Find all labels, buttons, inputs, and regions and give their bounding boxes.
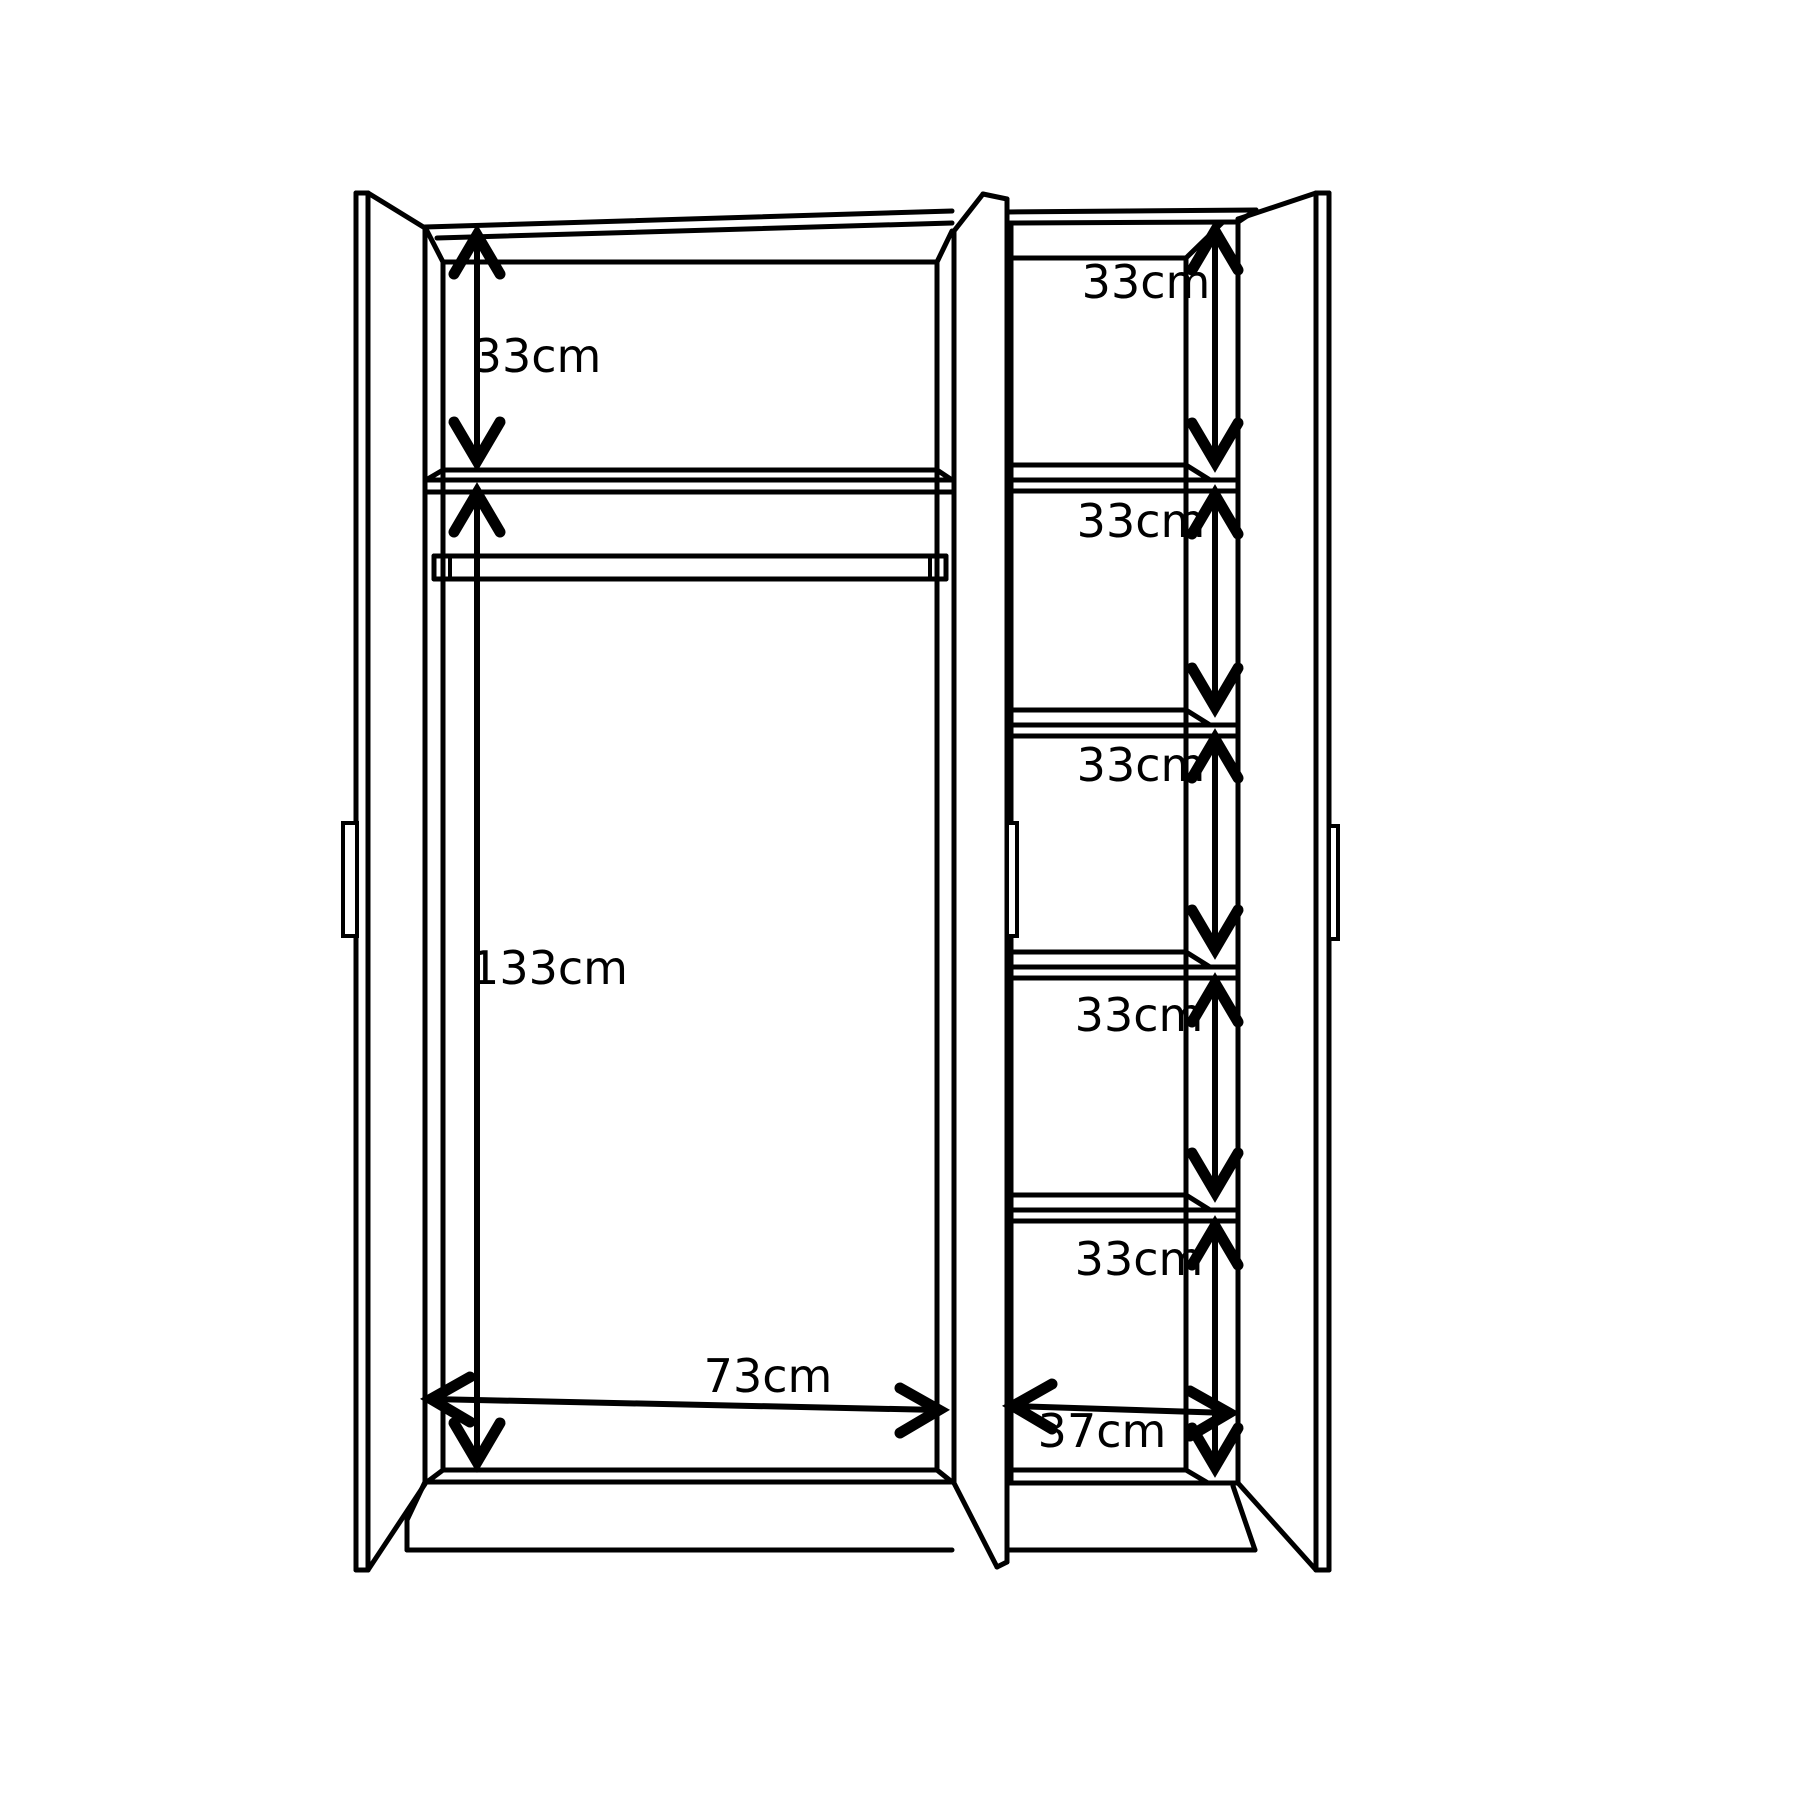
dimension-label-left-top: 33cm bbox=[473, 329, 602, 383]
left-top-shelf bbox=[425, 470, 952, 492]
dimension-label-right-shelf-1: 33cm bbox=[1082, 255, 1211, 309]
middle-door-handle bbox=[1007, 823, 1017, 936]
right-plinth bbox=[1008, 1486, 1255, 1550]
left-section-top bbox=[425, 211, 952, 238]
right-section-bottom bbox=[1008, 1470, 1238, 1483]
dimension-arrow-left-width bbox=[431, 1377, 939, 1433]
hanging-rail bbox=[434, 556, 946, 579]
right-door bbox=[1238, 193, 1338, 1570]
dimension-label-right-shelf-4: 33cm bbox=[1075, 988, 1204, 1042]
left-plinth bbox=[407, 1482, 952, 1550]
dimension-label-left-hanging: 133cm bbox=[470, 941, 628, 995]
right-door-handle bbox=[1329, 826, 1338, 939]
dimension-label-right-shelf-5: 33cm bbox=[1075, 1232, 1204, 1286]
dimension-label-right-shelf-3: 33cm bbox=[1077, 738, 1206, 792]
right-section-ceiling bbox=[1011, 223, 1222, 258]
middle-door bbox=[954, 194, 1017, 1567]
right-section-walls bbox=[1011, 219, 1238, 1483]
dimension-label-right-width: 37cm bbox=[1038, 1404, 1167, 1458]
dimension-label-right-shelf-2: 33cm bbox=[1077, 494, 1206, 548]
left-door bbox=[343, 193, 425, 1570]
wardrobe-diagram: 33cm 133cm 73cm 33cm 33cm 33cm 33cm 33cm… bbox=[0, 0, 1800, 1800]
left-section-walls bbox=[425, 227, 937, 1482]
left-door-handle bbox=[343, 823, 357, 936]
right-shelves bbox=[1008, 465, 1238, 1221]
dimension-label-left-width: 73cm bbox=[704, 1349, 833, 1403]
right-section-top bbox=[1008, 210, 1256, 223]
left-section-bottom bbox=[425, 1470, 952, 1482]
